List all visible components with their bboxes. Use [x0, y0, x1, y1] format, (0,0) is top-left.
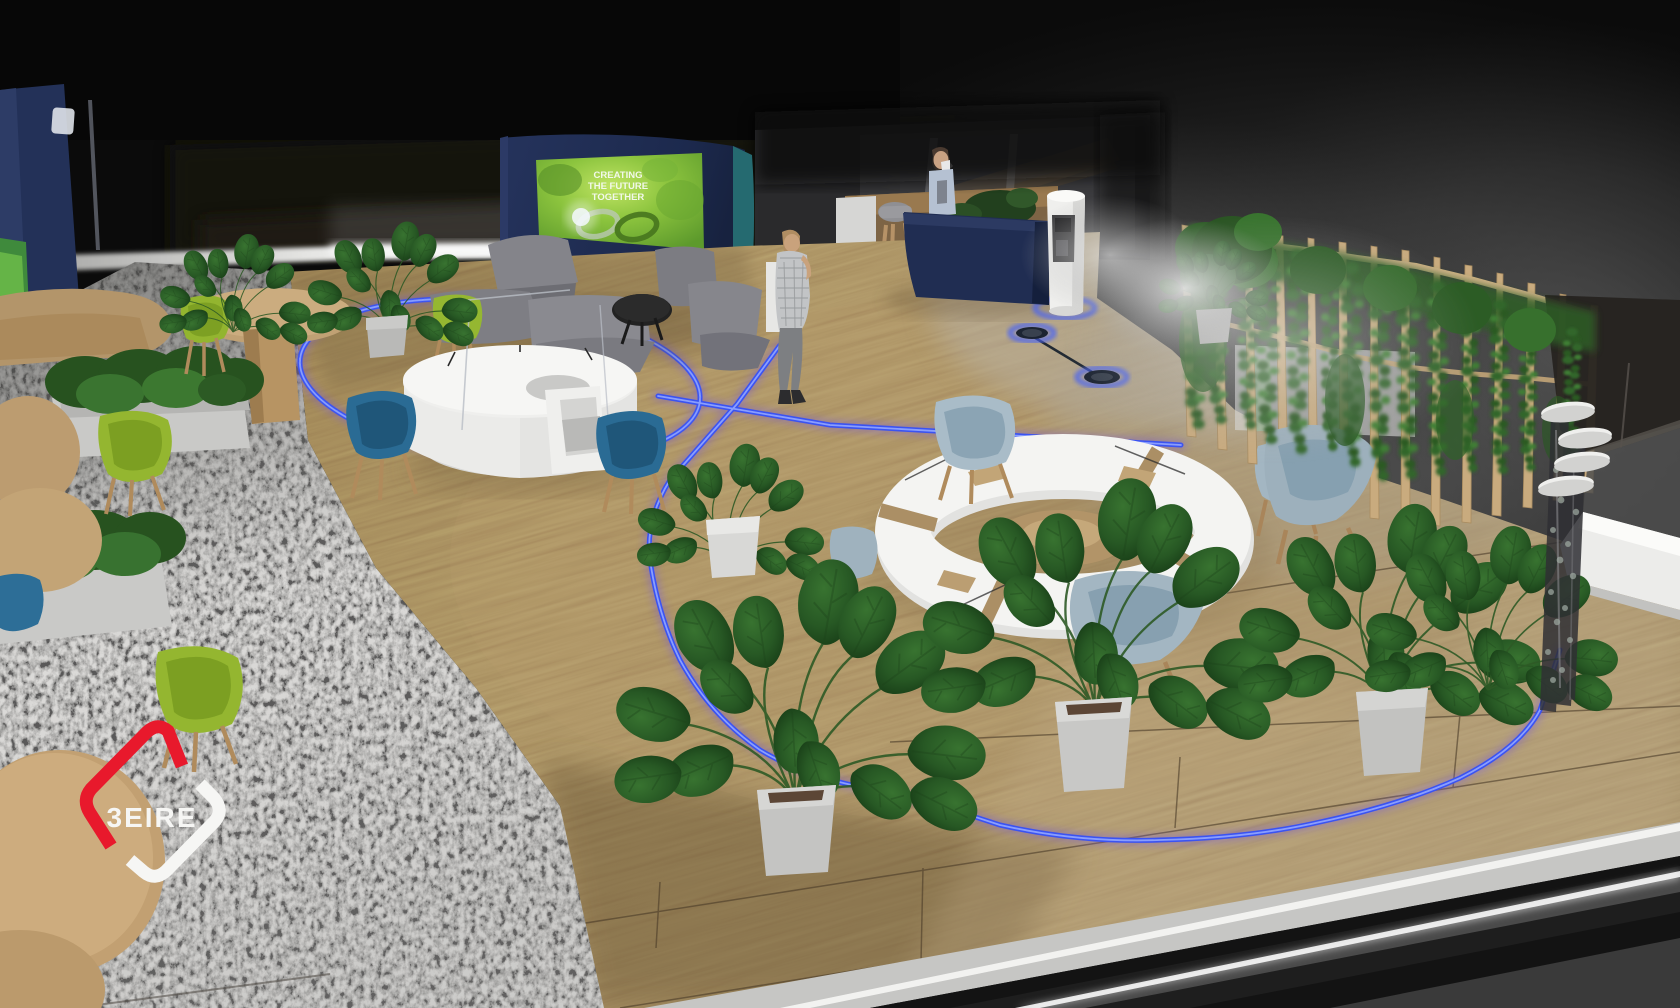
svg-text:TOGETHER: TOGETHER: [592, 192, 645, 203]
svg-text:CREATING: CREATING: [594, 170, 643, 181]
svg-text:3EIRE: 3EIRE: [107, 802, 198, 833]
svg-text:THE FUTURE: THE FUTURE: [588, 181, 648, 192]
